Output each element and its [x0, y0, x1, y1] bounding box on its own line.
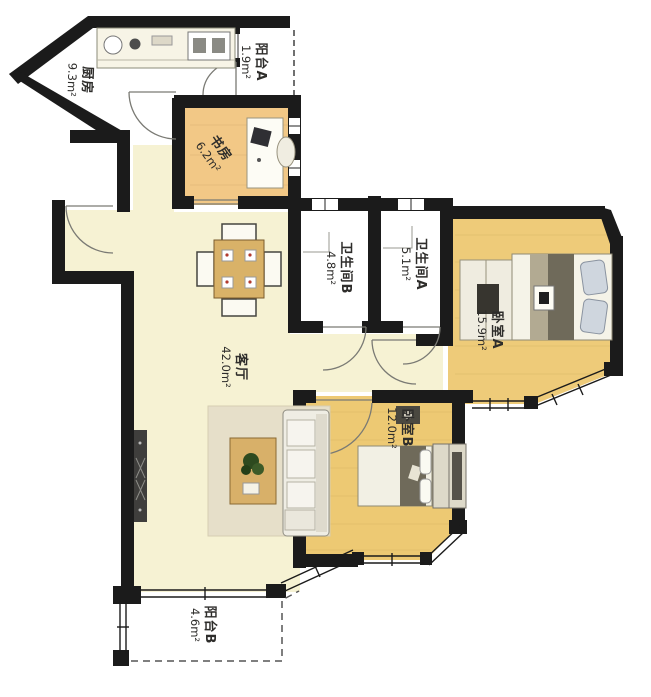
floor-plan-svg	[0, 0, 651, 697]
dining-table	[214, 240, 264, 298]
sink-icon	[104, 36, 122, 54]
bed-b	[358, 446, 432, 506]
balcony-b-outline	[131, 591, 299, 661]
balcony-a-edge	[229, 26, 294, 95]
kitchen-counter	[97, 28, 235, 68]
pillow	[580, 298, 608, 334]
bed-a	[512, 254, 612, 340]
faucet-icon	[130, 39, 141, 50]
desk-chair	[277, 137, 295, 167]
living-furniture	[208, 406, 330, 536]
tv-console	[134, 430, 147, 522]
pillow	[580, 259, 608, 295]
sofa	[283, 410, 329, 536]
bathroom-fixtures	[303, 226, 412, 252]
bedroom-a-furniture	[460, 254, 612, 340]
floor-plan: 厨房 9.3m² 阳台A 1.9m² 书房 6.2m² 卫生间B 4.8m² 卫…	[0, 0, 651, 697]
